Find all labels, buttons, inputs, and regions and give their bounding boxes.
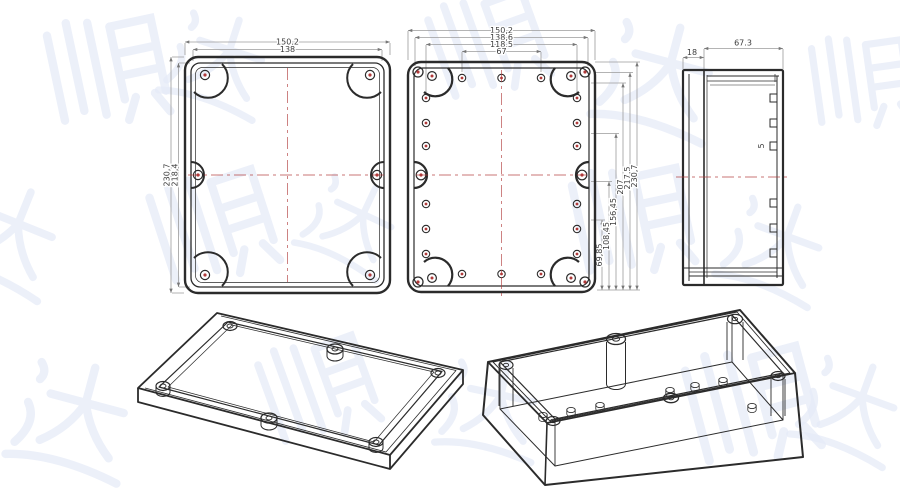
lid-isometric-view (108, 293, 493, 493)
lid-centerlines (188, 68, 387, 282)
side-body-outline (683, 70, 783, 285)
base-dimensions-right: 69,85 108,45 156,45 207 217,5 230,7 (591, 62, 640, 290)
dim-base-right-6: 230,7 (630, 165, 639, 188)
dim-body-depth: 67.3 (734, 39, 752, 48)
base-isometric-view (452, 288, 877, 500)
dim-lid-inner-width: 138 (280, 45, 295, 54)
base-3d-floor-bosses (539, 377, 756, 421)
base-centerlines (416, 70, 587, 296)
dim-base-right-3: 156,45 (609, 198, 618, 226)
side-internal-bosses (770, 94, 777, 257)
lid-top-view: 150,2 138 230,7 218,4 (158, 28, 402, 308)
side-dimensions: 67.3 18 5 (683, 39, 783, 149)
base-3d-body (483, 310, 803, 485)
dim-base-top-4: 67 (496, 47, 506, 56)
dim-boss-size: 5 (757, 143, 766, 148)
base-top-view: 150,2 138,6 118,5 67 69,85 108,45 156,45… (392, 22, 654, 312)
side-view: 67.3 18 5 (650, 28, 825, 293)
technical-drawing-page: { "page": { "background": "#ffffff", "li… (0, 0, 900, 500)
lid-3d-body (138, 313, 463, 469)
dim-lid-thickness: 18 (687, 48, 697, 57)
side-bottom-flange (683, 268, 783, 276)
dim-lid-inner-height: 218,4 (171, 164, 180, 187)
